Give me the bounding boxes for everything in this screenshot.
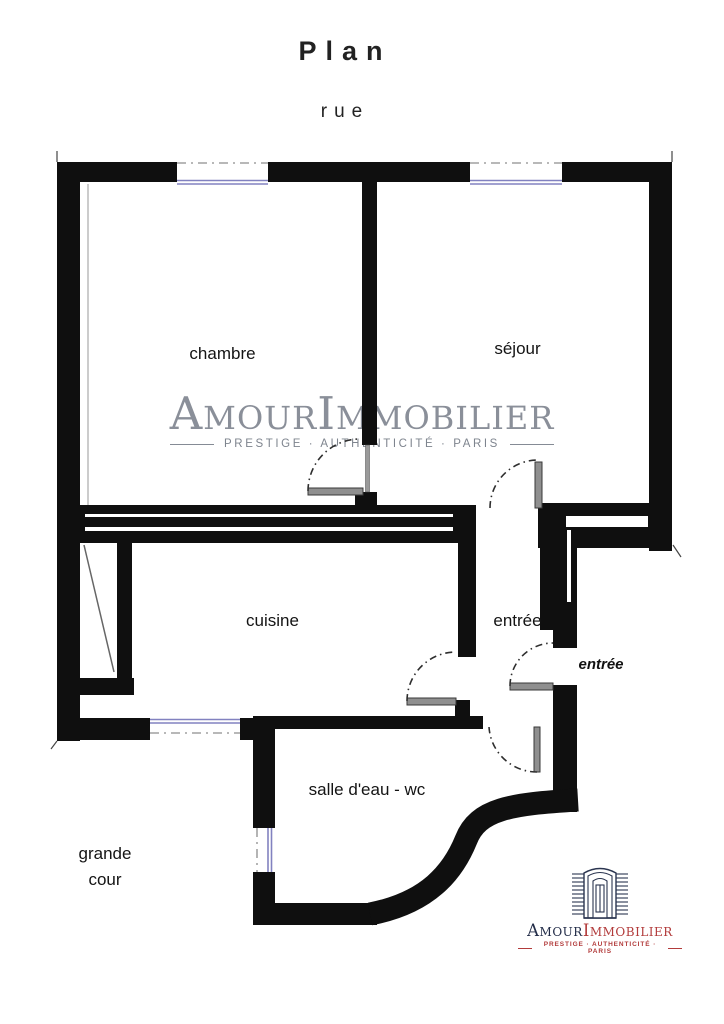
doorway-icon [572,862,628,922]
room-label-grande-cour: grande cour [68,841,142,893]
wall-cuisine-bottom-right [240,718,255,740]
door-leaf-sejour [535,462,542,508]
door-arc-sdb [489,727,537,772]
logo-tagline-row: PRESTIGE · AUTHENTICITÉ · PARIS [518,941,682,955]
entrance-label: entrée [558,656,644,673]
wall-right-exterior [649,162,672,551]
door-arc-chambre [308,439,360,491]
door-jamb-chambre [366,445,370,492]
wall-shaft-bottom [78,678,134,695]
wall-sdb-left-upper [253,716,275,828]
logo-brand-amour: Amour [527,921,583,940]
door-arc-front-entrance [510,643,553,686]
room-label-chambre: chambre [155,344,290,364]
room-label-salle-deau-wc: salle d'eau - wc [282,780,452,800]
wall-left-exterior [57,162,80,741]
wall-divider-chambre-sejour [362,182,377,445]
door-leaf-cuisine [407,698,456,705]
doorway-hatch-right [616,874,628,914]
room-label-sejour: séjour [455,339,580,359]
doorway-hatch-left [572,874,584,914]
shaft-diagonal-line [84,545,114,672]
room-label-cuisine: cuisine [205,611,340,631]
logo-brand: AmourImmobilier [518,922,682,940]
door-leaf-front-entrance [510,683,553,690]
wall-top-middle [268,162,470,182]
wall-corridor-left [458,505,476,657]
wall-sdb-bottom [253,903,377,925]
door-leaf-chambre [308,488,363,495]
door-arc-cuisine [407,652,456,701]
door-leaf-sdb [534,727,540,772]
logo-brand-immobilier: Immobilier [583,921,673,940]
agency-logo: AmourImmobilier PRESTIGE · AUTHENTICITÉ … [518,862,682,955]
wall-corridor-right-lower [553,630,577,648]
logo-dash-left [518,948,532,949]
wall-shaft-right [117,535,132,682]
wall-sdb-top [253,716,483,729]
logo-tagline: PRESTIGE · AUTHENTICITÉ · PARIS [536,941,664,955]
wall-cuisine-bottom-left [57,718,150,740]
door-arc-sejour [490,460,538,508]
floor-plan-page: Plan rue AmourImmobilier PRESTIGE · AUTH… [0,0,724,1024]
wall-cuisine-door-stub [455,700,470,717]
room-label-entree: entrée [455,611,580,631]
logo-dash-right [668,948,682,949]
